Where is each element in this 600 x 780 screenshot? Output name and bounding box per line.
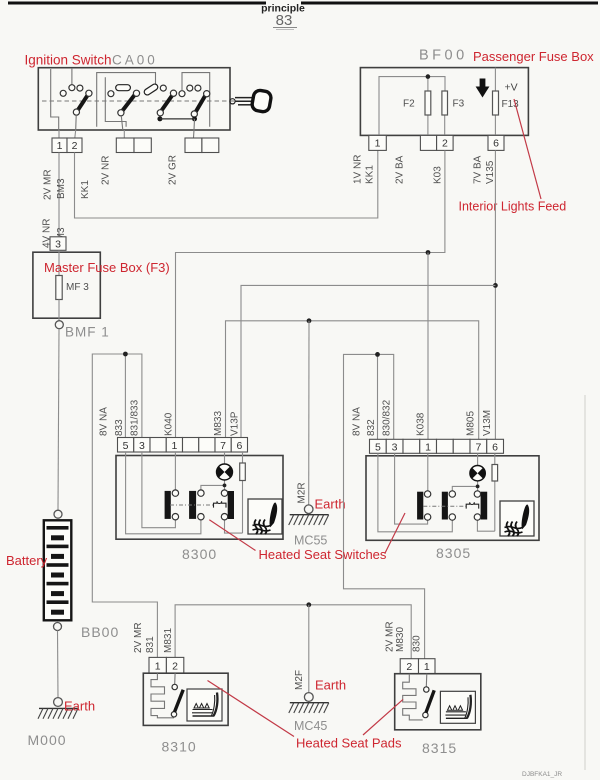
svg-text:KK1: KK1 xyxy=(80,180,91,199)
svg-text:F2: F2 xyxy=(403,99,415,110)
svg-text:BB00: BB00 xyxy=(81,624,119,640)
svg-text:2: 2 xyxy=(72,140,78,152)
svg-text:Earth: Earth xyxy=(64,699,95,714)
svg-text:7V BA: 7V BA xyxy=(473,155,484,184)
svg-text:BMF 1: BMF 1 xyxy=(65,325,110,340)
svg-text:831/833: 831/833 xyxy=(130,399,141,436)
svg-text:Passenger Fuse Box: Passenger Fuse Box xyxy=(473,49,594,64)
svg-text:K03: K03 xyxy=(433,166,444,184)
svg-text:M831: M831 xyxy=(163,628,174,653)
svg-text:1V NR: 1V NR xyxy=(353,155,364,184)
svg-text:5: 5 xyxy=(375,441,381,453)
svg-text:830/832: 830/832 xyxy=(382,399,393,436)
svg-text:DJBFKA1_JR: DJBFKA1_JR xyxy=(522,771,562,778)
svg-text:Battery: Battery xyxy=(6,553,48,568)
svg-text:CA00: CA00 xyxy=(112,53,158,68)
svg-text:Heated Seat Switches: Heated Seat Switches xyxy=(259,547,387,562)
svg-text:1: 1 xyxy=(425,441,431,453)
svg-text:Interior Lights Feed: Interior Lights Feed xyxy=(459,200,567,214)
svg-text:V13M: V13M xyxy=(482,410,493,436)
svg-text:2V MR: 2V MR xyxy=(43,169,54,200)
svg-text:Earth: Earth xyxy=(315,678,346,693)
svg-text:MC45: MC45 xyxy=(294,719,327,733)
svg-text:KK1: KK1 xyxy=(365,165,376,184)
svg-text:832: 832 xyxy=(366,419,377,436)
svg-text:1: 1 xyxy=(375,138,381,150)
svg-text:Heated Seat Pads: Heated Seat Pads xyxy=(296,736,402,751)
svg-text:1: 1 xyxy=(424,661,430,673)
svg-text:6: 6 xyxy=(236,440,242,452)
svg-text:M2F: M2F xyxy=(294,670,305,690)
svg-text:K038: K038 xyxy=(416,412,427,436)
svg-text:3: 3 xyxy=(55,238,61,250)
svg-text:833: 833 xyxy=(114,419,125,436)
svg-text:5: 5 xyxy=(123,440,129,452)
svg-text:+V: +V xyxy=(505,82,518,94)
svg-text:Earth: Earth xyxy=(315,497,346,512)
svg-text:8V NA: 8V NA xyxy=(99,407,110,436)
svg-text:MF 3: MF 3 xyxy=(66,282,89,293)
svg-text:2: 2 xyxy=(406,661,412,673)
svg-text:V135: V135 xyxy=(485,160,496,184)
svg-text:2V GR: 2V GR xyxy=(168,155,179,185)
svg-text:Master Fuse Box (F3): Master Fuse Box (F3) xyxy=(44,260,170,275)
svg-text:7: 7 xyxy=(475,441,481,453)
svg-text:M000: M000 xyxy=(28,732,67,748)
svg-text:8310: 8310 xyxy=(162,739,197,755)
svg-text:2V BA: 2V BA xyxy=(395,155,406,184)
svg-text:MC55: MC55 xyxy=(294,534,327,548)
svg-text:1: 1 xyxy=(57,140,63,152)
svg-text:831: 831 xyxy=(145,636,156,653)
svg-text:6: 6 xyxy=(492,441,498,453)
svg-text:2: 2 xyxy=(442,138,448,150)
svg-text:M833: M833 xyxy=(213,411,224,436)
svg-text:6: 6 xyxy=(493,138,499,150)
svg-text:830: 830 xyxy=(412,635,423,652)
svg-text:8300: 8300 xyxy=(182,546,217,562)
svg-text:F3: F3 xyxy=(453,99,465,110)
svg-text:Ignition Switch: Ignition Switch xyxy=(25,53,112,68)
svg-text:1: 1 xyxy=(171,440,177,452)
svg-text:2V MR: 2V MR xyxy=(385,621,396,652)
svg-text:7: 7 xyxy=(220,440,226,452)
svg-text:M805: M805 xyxy=(466,411,477,436)
svg-text:1: 1 xyxy=(155,661,161,673)
svg-text:V13P: V13P xyxy=(230,411,241,436)
svg-text:8305: 8305 xyxy=(436,545,471,561)
svg-text:2V NR: 2V NR xyxy=(101,156,112,185)
svg-text:BF00: BF00 xyxy=(419,48,468,64)
svg-text:8V NA: 8V NA xyxy=(352,407,363,436)
svg-text:2: 2 xyxy=(172,661,178,673)
svg-text:M830: M830 xyxy=(395,627,406,652)
svg-text:3: 3 xyxy=(392,441,398,453)
svg-text:2V MR: 2V MR xyxy=(133,622,144,653)
svg-text:BM3: BM3 xyxy=(56,178,67,199)
svg-text:3: 3 xyxy=(139,440,145,452)
svg-text:83: 83 xyxy=(276,12,293,29)
svg-text:8315: 8315 xyxy=(422,740,457,756)
svg-text:K040: K040 xyxy=(164,412,175,436)
svg-text:M2R: M2R xyxy=(297,482,308,503)
